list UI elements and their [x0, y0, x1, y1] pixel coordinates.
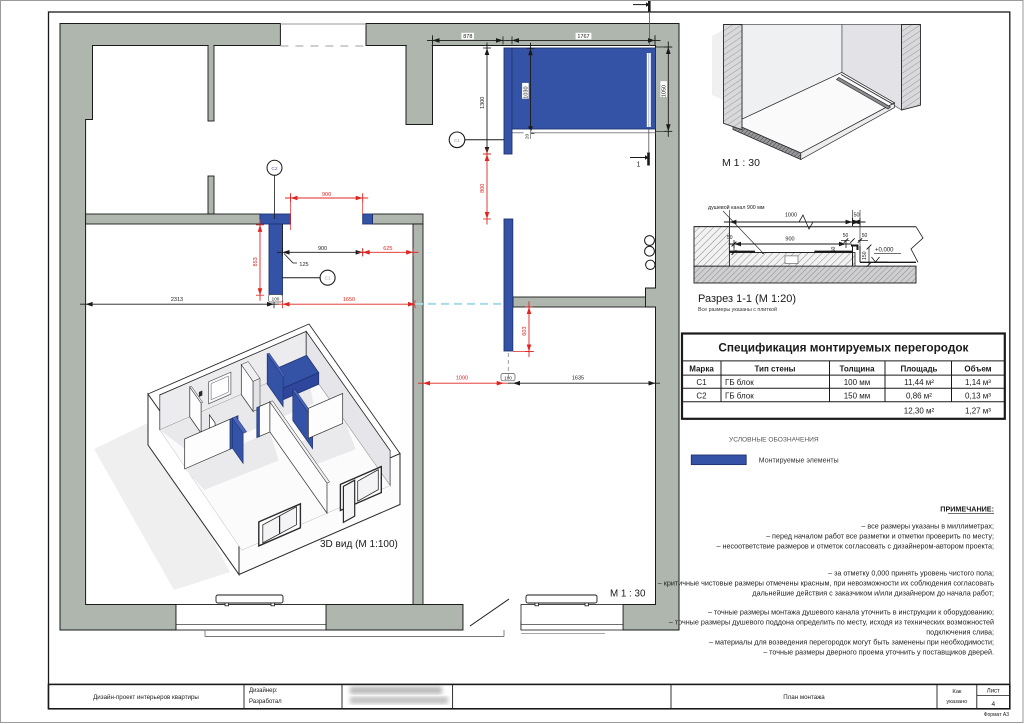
svg-text:853: 853 — [253, 257, 259, 266]
svg-text:1: 1 — [637, 162, 641, 169]
svg-text:0,13 м³: 0,13 м³ — [965, 391, 991, 400]
svg-text:Толщина: Толщина — [839, 364, 875, 373]
svg-text:УСЛОВНЫЕ ОБОЗНАЧЕНИЯ: УСЛОВНЫЕ ОБОЗНАЧЕНИЯ — [729, 437, 819, 444]
svg-text:ГБ блок: ГБ блок — [725, 391, 754, 400]
svg-text:50: 50 — [727, 235, 733, 241]
svg-text:– материалы для возведения пер: – материалы для возведения перегородок м… — [709, 638, 994, 647]
svg-text:С2: С2 — [271, 166, 277, 172]
svg-text:Площадь: Площадь — [901, 364, 938, 373]
svg-text:Спецификация монтируемых перег: Спецификация монтируемых перегородок — [718, 341, 968, 355]
svg-text:878: 878 — [463, 34, 472, 40]
svg-text:– критичные чистовые размеры о: – критичные чистовые размеры отмечены кр… — [658, 579, 994, 588]
svg-text:М 1 : 30: М 1 : 30 — [722, 157, 760, 169]
svg-text:Объем: Объем — [964, 364, 991, 373]
svg-text:603: 603 — [522, 327, 528, 336]
svg-text:1635: 1635 — [572, 376, 584, 382]
svg-text:1650: 1650 — [343, 297, 355, 303]
svg-text:– за отметку 0,000 принять уро: – за отметку 0,000 принять уровень чисто… — [828, 569, 994, 578]
svg-text:Формат А3: Формат А3 — [984, 712, 1009, 718]
svg-text:4: 4 — [991, 701, 995, 708]
svg-text:дальнейшие действия с заказчик: дальнейшие действия с заказчиком и/или д… — [752, 589, 994, 598]
svg-text:50: 50 — [862, 233, 868, 239]
svg-text:С1: С1 — [696, 378, 707, 387]
svg-text:900: 900 — [318, 246, 327, 252]
svg-text:План монтажа: План монтажа — [783, 694, 825, 701]
svg-text:подключения слива;: подключения слива; — [926, 628, 994, 637]
svg-text:– все размеры указаны в миллим: – все размеры указаны в миллиметрах; — [861, 522, 994, 531]
svg-text:1767: 1767 — [577, 34, 589, 40]
svg-text:3D вид (М 1:100): 3D вид (М 1:100) — [320, 539, 398, 550]
svg-text:Лист: Лист — [987, 688, 1000, 694]
svg-text:Разрез 1-1 (М 1:20): Разрез 1-1 (М 1:20) — [698, 293, 796, 305]
svg-text:900: 900 — [322, 192, 331, 198]
svg-text:– перед началом работ все разм: – перед началом работ все разметки и отм… — [766, 532, 994, 541]
svg-text:Монтируемые элементы: Монтируемые элементы — [759, 458, 839, 465]
svg-text:душевой канал 900 мм: душевой канал 900 мм — [708, 204, 765, 211]
svg-text:1,27 м³: 1,27 м³ — [965, 406, 991, 415]
svg-text:ПРИМЕЧАНИЕ:: ПРИМЕЧАНИЕ: — [940, 505, 994, 514]
svg-text:– несоответствие размеров и от: – несоответствие размеров и отметок согл… — [717, 542, 994, 551]
svg-text:М 1 : 30: М 1 : 30 — [610, 589, 646, 600]
svg-text:11,44 м²: 11,44 м² — [904, 378, 934, 387]
svg-text:125: 125 — [299, 262, 308, 268]
svg-text:0,86 м²: 0,86 м² — [906, 391, 932, 400]
svg-text:150 мм: 150 мм — [844, 391, 871, 400]
svg-text:Как: Как — [952, 689, 962, 695]
svg-text:Все размеры указаны с плиткой: Все размеры указаны с плиткой — [698, 306, 777, 313]
svg-text:– точные размеры душевого подд: – точные размеры душевого поддона опреде… — [669, 618, 994, 627]
svg-text:50: 50 — [831, 247, 837, 253]
svg-text:1300: 1300 — [480, 97, 486, 109]
svg-text:1000: 1000 — [785, 213, 797, 219]
svg-text:указано: указано — [946, 699, 967, 705]
svg-text:Дизайн-проект интерьеров кварт: Дизайн-проект интерьеров квартиры — [93, 694, 199, 701]
svg-text:С1: С1 — [454, 138, 460, 143]
svg-text:100 мм: 100 мм — [844, 378, 871, 387]
svg-text:С1: С1 — [325, 276, 331, 281]
svg-text:Тип стены: Тип стены — [754, 364, 795, 373]
svg-text:Дизайнер:: Дизайнер: — [249, 687, 278, 694]
svg-text:900: 900 — [785, 237, 794, 243]
svg-text:ГБ блок: ГБ блок — [725, 378, 754, 387]
svg-text:+0,000: +0,000 — [875, 248, 894, 254]
svg-text:1,14 м³: 1,14 м³ — [965, 378, 991, 387]
svg-text:12,30 м²: 12,30 м² — [904, 406, 935, 415]
svg-text:50: 50 — [853, 213, 859, 219]
svg-text:625: 625 — [383, 246, 392, 252]
svg-text:– точные размеры дверного прое: – точные размеры дверного проема уточнит… — [763, 648, 994, 657]
svg-text:150: 150 — [862, 251, 868, 260]
svg-text:800: 800 — [480, 184, 486, 193]
svg-text:100: 100 — [272, 297, 280, 302]
svg-text:2313: 2313 — [171, 297, 183, 303]
svg-text:– точные размеры монтажа душев: – точные размеры монтажа душевого канала… — [708, 608, 994, 617]
svg-text:20: 20 — [525, 134, 531, 140]
svg-text:1050: 1050 — [662, 85, 668, 97]
svg-text:1000: 1000 — [456, 376, 468, 382]
svg-text:Разработал: Разработал — [249, 699, 282, 705]
svg-text:50: 50 — [843, 233, 849, 239]
svg-text:С2: С2 — [696, 391, 707, 400]
svg-text:Марка: Марка — [689, 364, 714, 373]
svg-text:1030: 1030 — [523, 86, 529, 98]
